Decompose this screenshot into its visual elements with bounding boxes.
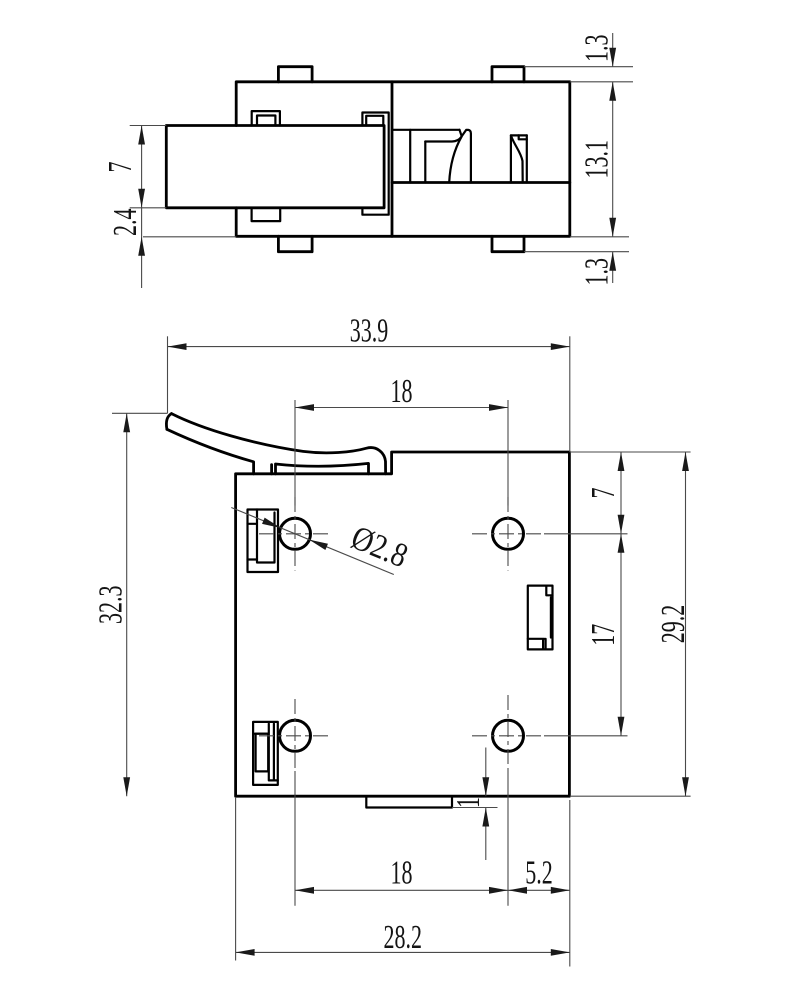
svg-text:18: 18 [391, 855, 413, 892]
svg-text:1.3: 1.3 [579, 258, 616, 286]
svg-text:1.3: 1.3 [579, 35, 616, 63]
svg-text:5.2: 5.2 [525, 855, 553, 892]
svg-text:17: 17 [585, 624, 622, 646]
svg-text:2.4: 2.4 [107, 209, 144, 237]
svg-text:7: 7 [585, 488, 622, 499]
svg-text:33.9: 33.9 [350, 313, 389, 350]
svg-text:Ø2.8: Ø2.8 [346, 519, 413, 575]
svg-text:7: 7 [102, 162, 139, 173]
svg-text:18: 18 [391, 373, 413, 410]
svg-text:28.2: 28.2 [383, 919, 422, 956]
svg-text:13.1: 13.1 [579, 140, 616, 179]
svg-text:1: 1 [450, 797, 487, 808]
svg-text:32.3: 32.3 [93, 586, 130, 625]
svg-text:29.2: 29.2 [655, 605, 692, 644]
